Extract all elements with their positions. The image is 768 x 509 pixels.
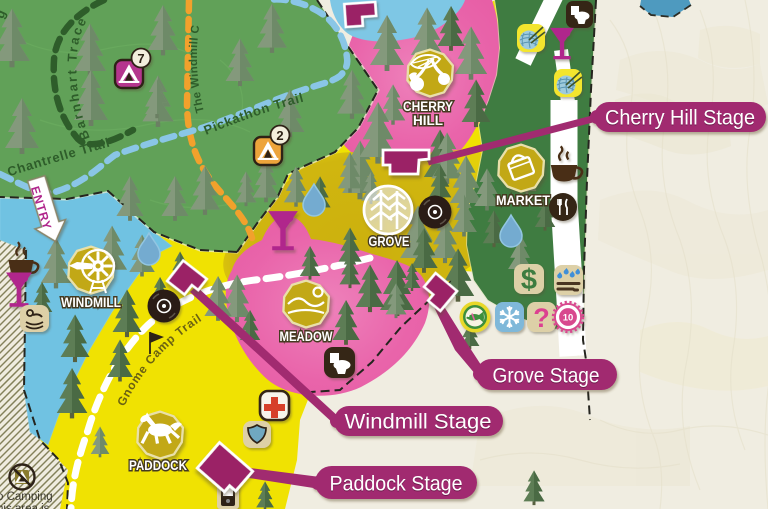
svg-text:WINDMILL: WINDMILL xyxy=(61,295,121,310)
svg-text:Paddock Stage: Paddock Stage xyxy=(330,472,463,496)
svg-text:MARKET: MARKET xyxy=(496,193,551,208)
svg-text:2: 2 xyxy=(276,128,283,143)
svg-text:MEADOW: MEADOW xyxy=(280,329,333,344)
svg-text:GROVE: GROVE xyxy=(369,234,410,249)
svg-text:7: 7 xyxy=(137,51,144,66)
svg-text:Grove Stage: Grove Stage xyxy=(493,364,600,388)
svg-text:Cherry Hill Stage: Cherry Hill Stage xyxy=(605,106,755,130)
svg-text:HILL: HILL xyxy=(413,113,443,128)
svg-text:his area is: his area is xyxy=(0,503,50,509)
svg-text:Windmill Stage: Windmill Stage xyxy=(345,410,492,434)
svg-text:CHERRY: CHERRY xyxy=(403,99,453,114)
svg-text:$: $ xyxy=(521,264,537,296)
svg-text:PADDOCK: PADDOCK xyxy=(129,458,187,473)
svg-text:?: ? xyxy=(533,303,550,333)
svg-text:10: 10 xyxy=(563,313,574,324)
svg-text:o Camping: o Camping xyxy=(0,491,53,503)
